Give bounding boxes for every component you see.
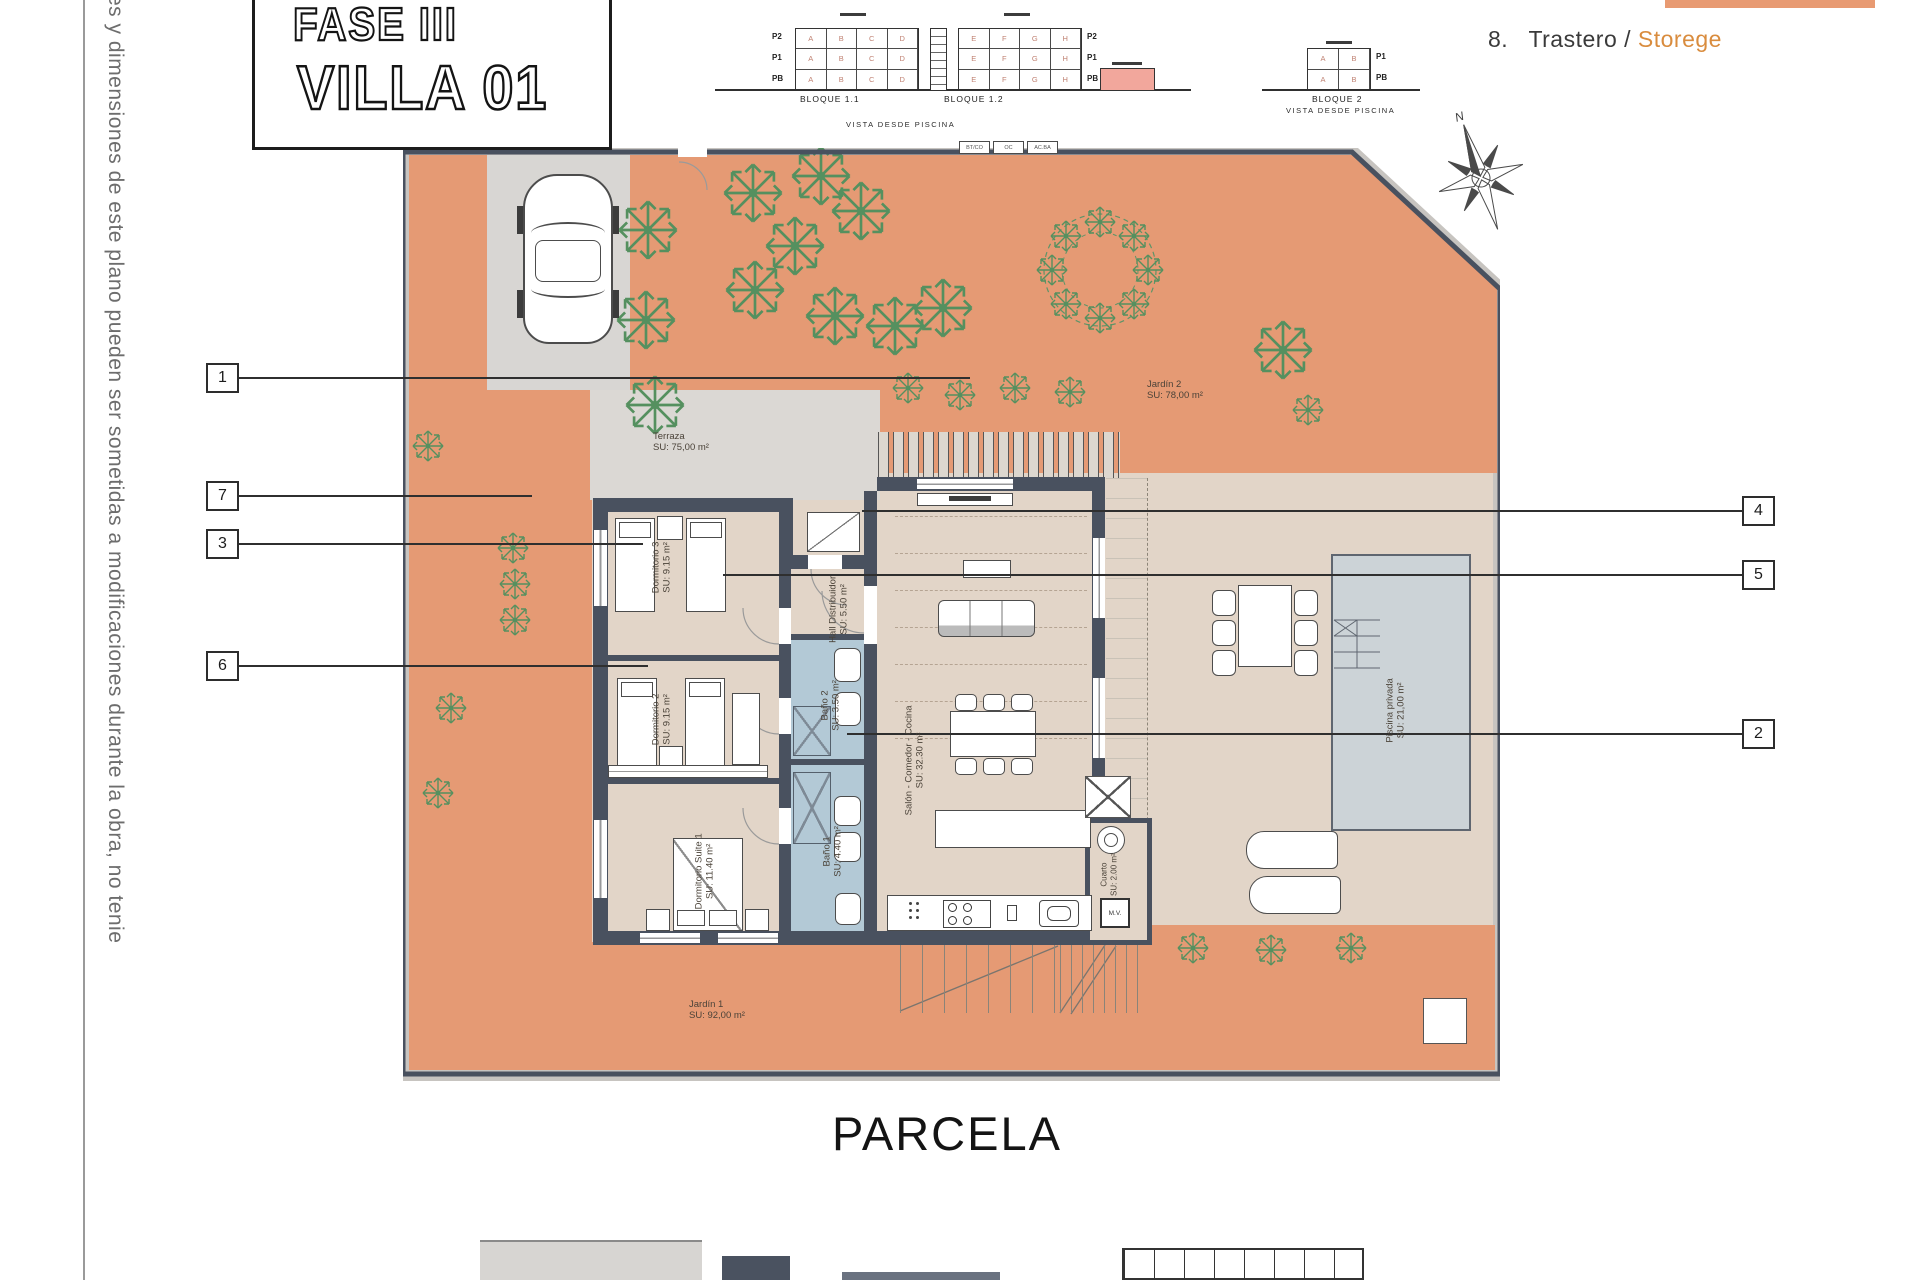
- outdoor-chair: [1212, 620, 1236, 646]
- callout-5: 5: [1742, 560, 1775, 590]
- hall-label: Hall Distribuidor SU: 5.50 m²: [828, 564, 851, 654]
- parcela-title: PARCELA: [832, 1106, 1062, 1161]
- unit-cell: C: [857, 70, 888, 90]
- stair-core: [930, 28, 947, 91]
- dining-chair: [1011, 694, 1033, 711]
- sheet-border-line: [83, 0, 85, 1280]
- exterior-stairs: [900, 943, 1060, 1013]
- dimension-mark: [1112, 62, 1142, 65]
- dimension-mark: [840, 13, 866, 16]
- ceiling-line: [895, 553, 1087, 554]
- callout-3: 3: [206, 529, 239, 559]
- burner: [948, 903, 957, 912]
- bloque-1-1-label: BLOQUE 1.1: [800, 94, 860, 104]
- plan-sheet: es y dimensiones de este plano pueden se…: [0, 0, 1920, 1280]
- pillow: [621, 682, 653, 697]
- window: [718, 933, 778, 943]
- legend-index: 8.: [1488, 26, 1508, 52]
- row-label-pb: PB: [772, 74, 783, 83]
- title-villa: VILLA 01: [297, 53, 578, 124]
- unit-cell: B: [827, 70, 858, 90]
- burner: [948, 916, 957, 925]
- bloque-2-elevation: A B A B: [1307, 48, 1371, 91]
- leader-line-7: [239, 495, 532, 497]
- unit-cell: B: [827, 29, 858, 49]
- cropped-drawing: [480, 1240, 702, 1280]
- ceiling-line: [895, 516, 1087, 517]
- door-opening: [779, 808, 791, 844]
- window: [594, 530, 607, 606]
- sink-basin: [1047, 906, 1071, 921]
- utility-box-ac: AC.BA: [1027, 141, 1058, 154]
- unit-cell: B: [1339, 70, 1370, 91]
- pillow: [689, 682, 721, 697]
- callout-7: 7: [206, 481, 239, 511]
- row-label-p2: P2: [772, 32, 782, 41]
- row-label-p2: P2: [1087, 32, 1097, 41]
- leader-line-1: [239, 377, 970, 379]
- row-label-p1: P1: [1087, 53, 1097, 62]
- unit-cell: G: [1020, 29, 1051, 49]
- unit-cell: A: [1308, 70, 1339, 91]
- entrance-gate: [678, 148, 707, 157]
- highlighted-villa-unit: [1100, 68, 1155, 91]
- callout-4: 4: [1742, 496, 1775, 526]
- unit-cell: G: [1020, 49, 1051, 69]
- closet: [807, 512, 860, 552]
- leader-line-3: [239, 543, 643, 545]
- unit-cell: A: [796, 49, 827, 69]
- row-label-p1: P1: [1376, 52, 1386, 61]
- sliding-door: [1093, 538, 1105, 618]
- utility-box-bt: BT/CO: [959, 141, 990, 154]
- cropped-drawing: [722, 1256, 790, 1280]
- unit-cell: D: [888, 49, 919, 69]
- exterior-stairs: [1060, 943, 1148, 1013]
- outdoor-shower-symbol: [1085, 776, 1131, 818]
- outdoor-chair: [1294, 590, 1318, 616]
- dormitorio3-label: Dormitorio 3 SU: 9.15 m²: [651, 527, 674, 607]
- leader-line-4: [862, 510, 1742, 512]
- pillow: [619, 522, 651, 538]
- legend-item-8: 8. Trastero / Storege: [1488, 26, 1722, 53]
- wall: [779, 498, 793, 569]
- unit-cell: A: [796, 29, 827, 49]
- unit-cell: E: [959, 49, 990, 69]
- unit-cell: C: [857, 49, 888, 69]
- unit-cell: E: [959, 70, 990, 90]
- row-label-p1: P1: [772, 53, 782, 62]
- kitchen-island: [935, 810, 1091, 848]
- vista-desde-piscina-label: VISTA DESDE PISCINA: [1286, 106, 1395, 115]
- outdoor-chair: [1294, 650, 1318, 676]
- villa-site-plan: BT/CO OC AC.BA: [403, 148, 1500, 1090]
- dimension-mark: [1004, 13, 1030, 16]
- bloque-2-label: BLOQUE 2: [1312, 94, 1363, 104]
- window: [594, 820, 607, 898]
- pillow: [690, 522, 722, 538]
- row-label-pb: PB: [1376, 73, 1387, 82]
- tv: [949, 496, 991, 501]
- disclaimer-vertical-text: es y dimensiones de este plano pueden se…: [98, 0, 132, 1280]
- outdoor-chair: [1294, 620, 1318, 646]
- cropped-drawing: [842, 1272, 1000, 1280]
- row-label-pb: PB: [1087, 74, 1098, 83]
- unit-cell: E: [959, 29, 990, 49]
- ceiling-line: [895, 664, 1087, 665]
- cropped-drawing: [1122, 1248, 1364, 1280]
- cuarto-label: Cuarto SU: 2.00 m²: [1099, 845, 1118, 905]
- outdoor-table: [1238, 585, 1292, 667]
- dining-chair: [955, 694, 977, 711]
- dining-chair: [983, 758, 1005, 775]
- faucet: [1007, 905, 1017, 921]
- bloque-1-2-label: BLOQUE 1.2: [944, 94, 1004, 104]
- callout-1: 1: [206, 363, 239, 393]
- car-rear-window: [531, 280, 605, 298]
- nightstand: [646, 909, 670, 931]
- sofa: [938, 600, 1035, 637]
- unit-cell: H: [1051, 49, 1082, 69]
- partition-wall: [608, 778, 779, 784]
- interior-opening: [864, 586, 877, 644]
- vista-desde-piscina-label: VISTA DESDE PISCINA: [846, 120, 955, 129]
- dormitorio2-label: Dormitorio 2 SU: 9.15 m²: [651, 679, 674, 759]
- north-compass: N: [1415, 108, 1547, 240]
- jardin2-label: Jardín 2 SU: 78,00 m²: [1147, 379, 1203, 402]
- piscina-label: Piscina privada SU: 21,00 m²: [1385, 665, 1408, 755]
- window: [917, 479, 1013, 489]
- partition-wall: [608, 655, 779, 661]
- wardrobe: [732, 693, 760, 765]
- partition-wall: [791, 759, 864, 765]
- bano1-label: Baño 1 SU: 4.40 m²: [822, 816, 845, 886]
- callout-2: 2: [1742, 719, 1775, 749]
- cropped-orange-bar: [1665, 0, 1875, 8]
- leader-line-6: [239, 665, 648, 667]
- bano2-label: Baño 2 SU: 3.50 m²: [820, 670, 843, 740]
- title-phase: FASE III: [293, 0, 571, 51]
- jardin1-label: Jardín 1 SU: 92,00 m²: [689, 999, 745, 1022]
- burner: [963, 903, 972, 912]
- toilet: [835, 893, 861, 925]
- wall: [864, 491, 877, 569]
- garden-utility-box: [1423, 998, 1467, 1044]
- north-label: N: [1453, 109, 1466, 125]
- outdoor-chair: [1212, 650, 1236, 676]
- unit-cell: A: [796, 70, 827, 90]
- ground-line: [1262, 89, 1420, 91]
- door-opening: [779, 698, 791, 734]
- burner: [963, 916, 972, 925]
- wall: [593, 498, 793, 512]
- suite-label: Dormitorio Suite 1 SU: 11.40 m²: [694, 821, 717, 921]
- unit-cell: G: [1020, 70, 1051, 90]
- title-block: FASE III VILLA 01: [252, 0, 612, 150]
- unit-cell: A: [1308, 49, 1339, 70]
- door-opening: [779, 608, 791, 644]
- window: [640, 933, 700, 943]
- pergola-slats: [878, 432, 1120, 478]
- nightstand: [745, 909, 769, 931]
- dimension-mark: [1326, 41, 1352, 44]
- sun-lounger: [1249, 876, 1341, 914]
- sliding-door: [1093, 678, 1105, 758]
- legend-label-alt: Storege: [1638, 26, 1722, 52]
- unit-cell: F: [990, 70, 1021, 90]
- unit-cell: F: [990, 49, 1021, 69]
- bloque-1-2-elevation: E F G H E F G H E F G H: [958, 28, 1082, 91]
- unit-cell: F: [990, 29, 1021, 49]
- unit-cell: D: [888, 70, 919, 90]
- legend-label: Trastero /: [1528, 26, 1631, 52]
- leader-line-2: [847, 733, 1742, 735]
- unit-cell: H: [1051, 70, 1082, 90]
- terraza-label: Terraza SU: 75,00 m²: [653, 431, 709, 454]
- outdoor-chair: [1212, 590, 1236, 616]
- unit-cell: D: [888, 29, 919, 49]
- wardrobe-strip: [608, 765, 768, 778]
- sun-lounger: [1246, 831, 1338, 869]
- dining-chair: [1011, 758, 1033, 775]
- utility-box-oc: OC: [993, 141, 1024, 154]
- unit-cell: B: [827, 49, 858, 69]
- salon-label: Salón - Comedor - Cocina SU: 32.30 m²: [904, 675, 927, 845]
- unit-cell: C: [857, 29, 888, 49]
- leader-line-5: [723, 574, 1742, 576]
- callout-6: 6: [206, 651, 239, 681]
- unit-cell: H: [1051, 29, 1082, 49]
- car-roof: [535, 240, 601, 282]
- ceiling-line: [895, 590, 1087, 591]
- stove-knobs: [909, 902, 912, 905]
- dining-chair: [955, 758, 977, 775]
- bloque-1-1-elevation: A B C D A B C D A B C D: [795, 28, 919, 91]
- unit-cell: B: [1339, 49, 1370, 70]
- dining-chair: [983, 694, 1005, 711]
